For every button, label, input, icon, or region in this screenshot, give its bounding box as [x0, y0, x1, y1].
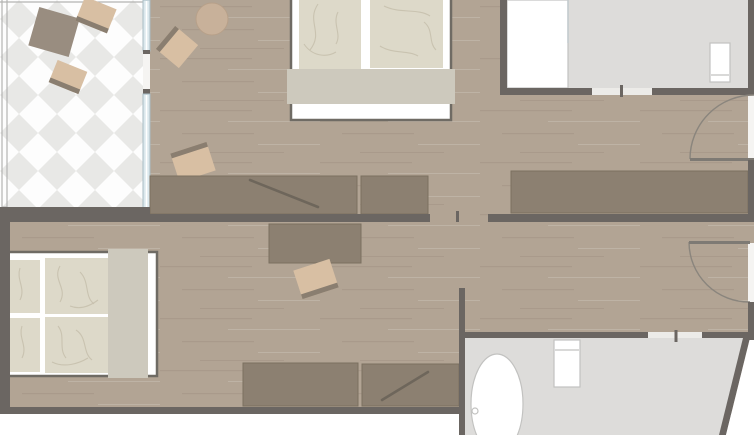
upper-bed-mattress-right: [370, 0, 443, 68]
lower-bed-mattress-top: [45, 258, 108, 314]
upper-entry-door-leaf: [690, 158, 754, 161]
cabinet-upper: [361, 176, 428, 214]
sideboard-right: [362, 364, 459, 406]
dividing-wall-right: [488, 214, 754, 222]
terrace-window-lower-core: [146, 95, 148, 213]
round-side-table: [196, 3, 228, 35]
bathtub-drain: [472, 408, 478, 414]
upper-toilet: [710, 43, 730, 82]
lower-bathroom-door-tick: [675, 330, 678, 342]
lower-bed-pillow-top: [10, 260, 40, 313]
upper-bathroom-wall-south-right: [652, 88, 754, 95]
bottom-wall-lower: [0, 407, 465, 414]
divider-post-1: [143, 50, 150, 54]
upper-bathroom-door-tick: [620, 85, 623, 97]
lower-toilet: [554, 340, 580, 387]
upper-bathroom-wall-left: [500, 0, 507, 95]
upper-bed-foot-runner: [287, 69, 455, 104]
upper-bathroom: [500, 0, 754, 97]
connecting-door-tick: [456, 211, 459, 223]
double-bed-lower: [6, 249, 157, 378]
upper-entry-opening: [748, 95, 754, 160]
terrace-window-upper-core: [146, 1, 148, 50]
sideboard-left: [243, 363, 358, 406]
right-wall-lower: [748, 302, 754, 340]
lower-bathroom-wall-west: [459, 288, 465, 435]
left-wall-lower: [0, 207, 10, 414]
terrace-divider: [143, 0, 150, 214]
terrace-door: [143, 54, 150, 89]
lower-bed-mattress-bottom: [45, 317, 108, 373]
lower-bed-foot-runner: [108, 249, 148, 378]
double-bed-upper: [287, 0, 455, 120]
lower-bathroom-wall-north-right: [702, 332, 748, 338]
lower-bed-pillow-bottom: [10, 318, 40, 372]
right-wall-top: [748, 0, 754, 95]
outside-bottom: [0, 414, 465, 435]
floor-plan: [0, 0, 754, 435]
lower-bathroom: [465, 330, 754, 435]
upper-bed-mattress-left: [299, 0, 361, 69]
lower-entry-door-leaf: [689, 241, 750, 244]
terrace: [0, 0, 144, 207]
divider-post-2: [143, 89, 150, 94]
lower-entry-opening: [748, 243, 754, 302]
wardrobe-upper: [511, 171, 748, 213]
desk-lower: [269, 224, 361, 263]
upper-bathroom-wall-south-left: [500, 88, 592, 95]
walk-in-shower: [507, 0, 568, 88]
dividing-wall-left: [144, 214, 430, 222]
floor-plan-svg: [0, 0, 754, 435]
lower-bathroom-wall-north-left: [465, 332, 648, 338]
